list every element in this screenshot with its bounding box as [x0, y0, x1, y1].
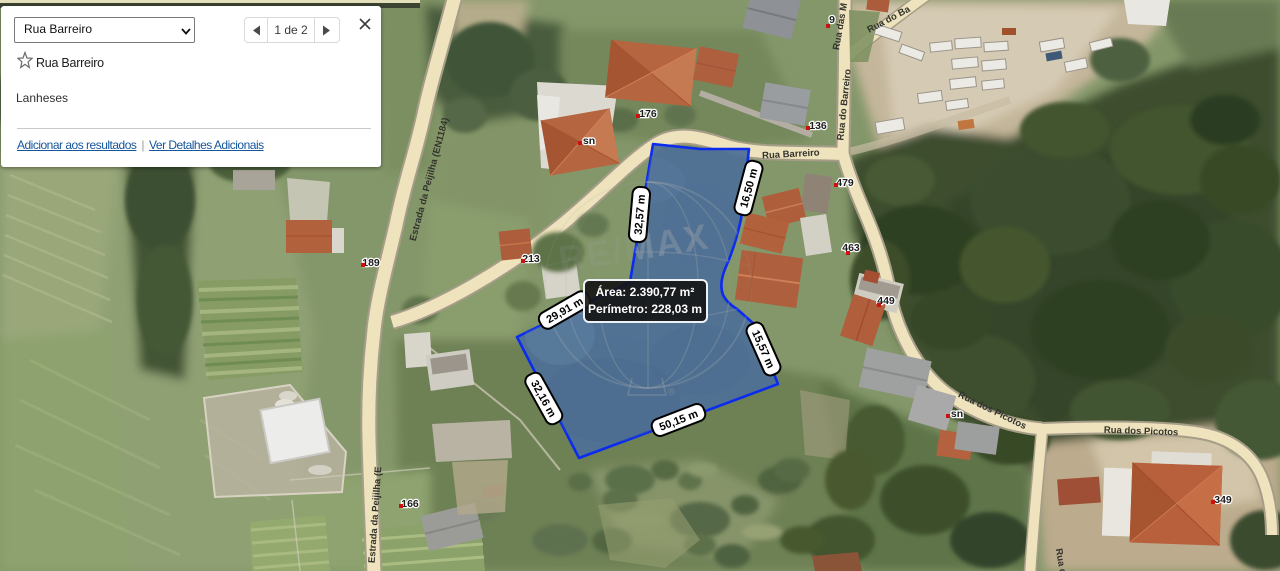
- svg-text:349: 349: [1214, 494, 1232, 506]
- svg-text:sn: sn: [583, 135, 595, 147]
- svg-text:136: 136: [809, 120, 827, 132]
- svg-text:sn: sn: [951, 408, 963, 420]
- svg-text:479: 479: [836, 177, 854, 189]
- svg-text:166: 166: [401, 498, 419, 510]
- svg-text:176: 176: [639, 108, 657, 120]
- svg-text:463: 463: [842, 242, 860, 254]
- svg-text:Perímetro: 228,03 m: Perímetro: 228,03 m: [588, 302, 702, 316]
- svg-text:Área: 2.390,77 m²: Área: 2.390,77 m²: [596, 284, 695, 299]
- svg-text:®: ®: [668, 387, 676, 398]
